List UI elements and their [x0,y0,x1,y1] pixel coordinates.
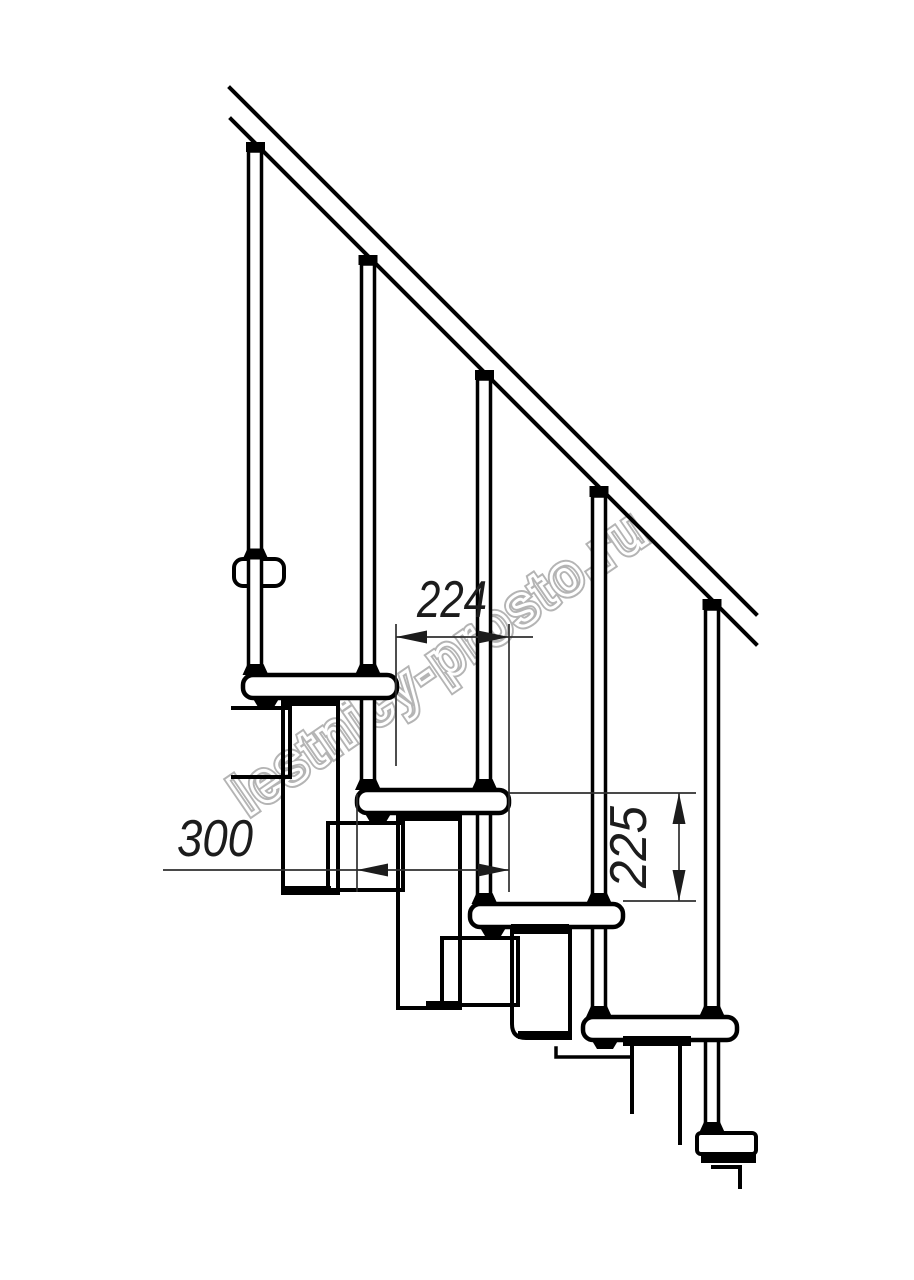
rail-connector-4 [590,486,609,497]
module-sleeve-3 [442,938,518,1005]
tread-1 [243,675,397,698]
baluster-4 [593,496,606,1017]
tread-1-bar-bracket [281,696,337,706]
module-tube-1-endcap [283,886,331,893]
baluster-5-pass-collar [699,1006,725,1017]
baluster-3-base-collar [472,893,498,904]
dimension-depth-arrow-left [357,864,388,877]
baluster-4-base-collar [586,1006,612,1017]
handrail-bottom-edge [231,119,756,644]
rail-connector-5 [703,599,722,610]
tread-3-wedge-bracket [479,926,507,936]
dimension-depth-label: 300 [177,810,253,868]
baluster-5-base-collar [699,1122,725,1133]
dimension-rise-arrow-down [673,870,686,901]
rail-connector-3 [475,370,494,380]
floor-platform-bracket [701,1152,756,1163]
dimension-rise-label: 225 [600,805,658,889]
tread-3-bar-bracket [511,924,569,934]
tread-4-bar-bracket [623,1036,691,1046]
baluster-2-base-collar [355,779,381,790]
dimension-rise: 225 [509,793,696,901]
tread-1-wedge-bracket [252,697,280,707]
tread-2 [357,790,509,813]
baluster-1-pass-collar [243,549,269,560]
tread-4-wedge-bracket [591,1039,619,1049]
dimension-going-label: 224 [416,571,487,629]
module-tube-2 [398,817,460,1008]
rail-connector-1 [246,142,265,152]
baluster-1-base-collar [243,664,269,675]
dimension-rise-arrow-up [673,793,686,824]
tread-2-bar-bracket [396,811,459,821]
floor-platform-plate [697,1133,756,1154]
floor-platform [697,1133,756,1187]
tread-2-wedge-bracket [364,812,392,822]
module-tube-3-endcap [518,1031,570,1039]
module-sleeve-4-cutoff [556,1048,632,1057]
baluster-5 [706,609,719,1133]
module-tube-4-cutoff [632,1046,680,1143]
rail-connector-2 [359,255,378,265]
staircase-elevation-drawing: lestnicy-prosto.ru lestnicy-prosto.ru [0,0,914,1280]
handrail [230,88,756,644]
baluster-3-pass-collar [472,779,498,790]
floor-step-outline [713,1167,740,1187]
tread-3 [470,904,623,927]
baluster-4-pass-collar [586,893,612,904]
staircase-drawing-page: lestnicy-prosto.ru lestnicy-prosto.ru [0,0,914,1280]
dimension-depth-arrow-right [478,864,509,877]
module-tube-3 [512,927,570,1038]
baluster-2 [362,264,375,790]
baluster-1 [249,151,262,675]
handrail-top-edge [230,88,756,614]
